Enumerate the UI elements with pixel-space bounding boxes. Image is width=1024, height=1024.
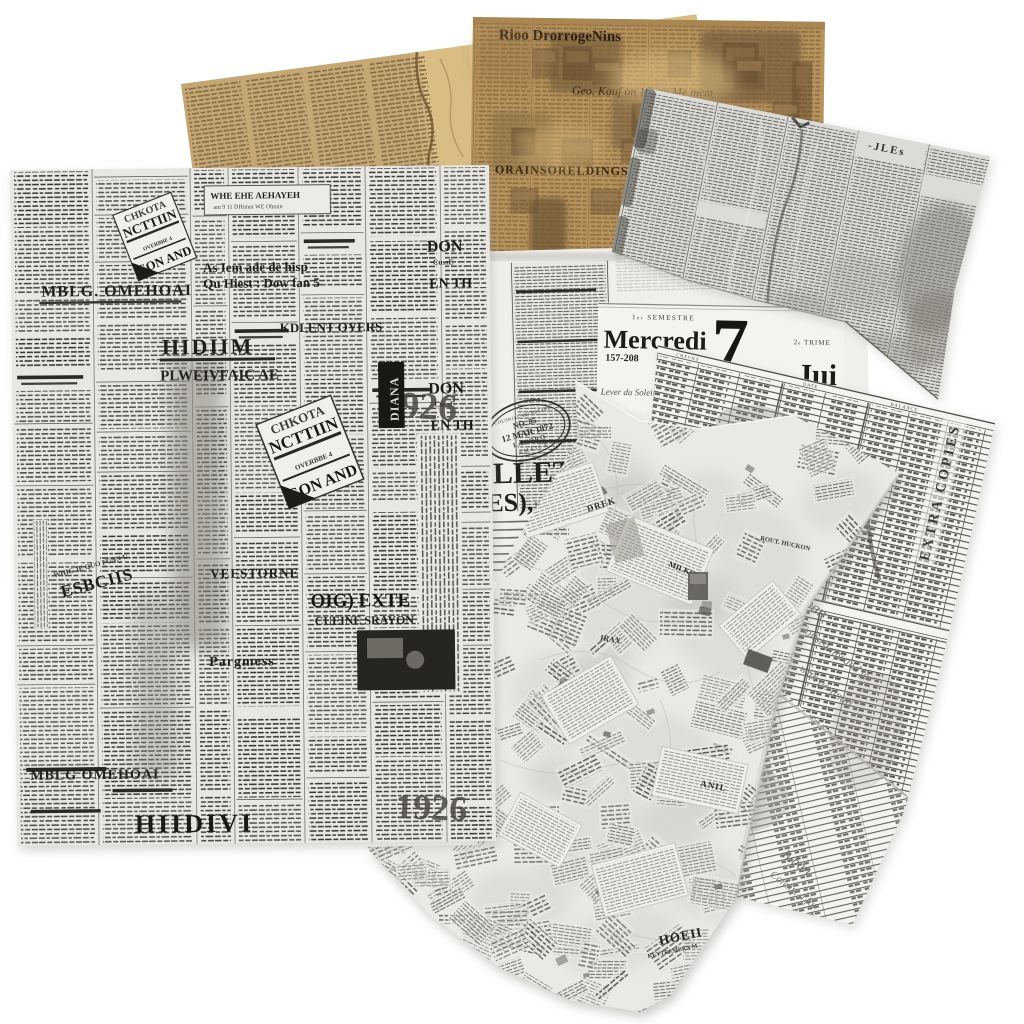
svg-text:DON: DON bbox=[428, 380, 464, 397]
svg-text:PLWEIVFAIC AE: PLWEIVFAIC AE bbox=[160, 367, 279, 384]
svg-text:EN TH: EN TH bbox=[431, 418, 474, 433]
svg-text:CUEINE SRAYON: CUEINE SRAYON bbox=[315, 613, 415, 628]
svg-text:As Iem ade de hisp: As Iem ade de hisp bbox=[203, 259, 308, 275]
svg-text:Qu Hiest : Dow fan 5: Qu Hiest : Dow fan 5 bbox=[203, 275, 320, 291]
svg-text:DON: DON bbox=[427, 238, 463, 255]
svg-text:WHE EHE AEHAYEH: WHE EHE AEHAYEH bbox=[210, 190, 300, 201]
svg-text:DIANA: DIANA bbox=[387, 377, 401, 421]
svg-text:KDLENT OYERS: KDLENT OYERS bbox=[280, 319, 383, 335]
svg-text:Mercredi: Mercredi bbox=[603, 325, 707, 356]
svg-text:CussE: CussE bbox=[434, 399, 455, 408]
svg-text:HIDIIM: HIDIIM bbox=[162, 333, 254, 359]
svg-text:CussE: CussE bbox=[433, 257, 454, 266]
svg-text:OIG) EXTE: OIG) EXTE bbox=[310, 590, 410, 612]
svg-text:HIIDIVI: HIIDIVI bbox=[135, 808, 255, 838]
svg-text:EN TH: EN TH bbox=[429, 276, 472, 291]
svg-text:MBLG. OMEHOAI: MBLG. OMEHOAI bbox=[41, 282, 192, 301]
svg-text:Pargmess: Pargmess bbox=[209, 654, 275, 670]
svg-text:VEESTORNE: VEESTORNE bbox=[210, 565, 299, 581]
svg-text:157-208: 157-208 bbox=[605, 353, 639, 365]
svg-text:am 9 11 DHimm WE Ohmin: am 9 11 DHimm WE Ohmin bbox=[213, 204, 282, 211]
svg-text:1926: 1926 bbox=[394, 786, 468, 829]
